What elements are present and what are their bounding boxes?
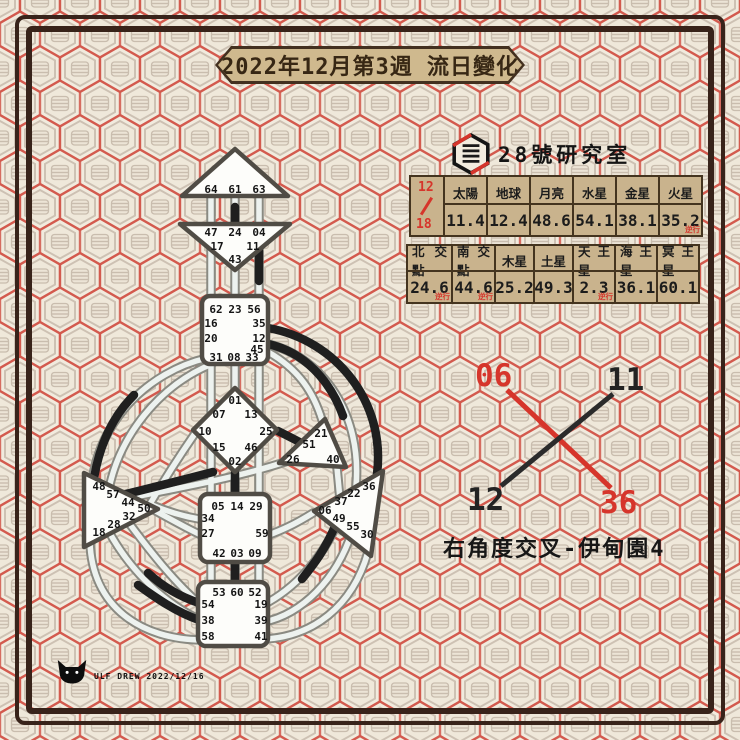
gate-02: 02	[228, 455, 241, 468]
gate-33: 33	[245, 351, 258, 364]
retrograde-badge: 逆行	[598, 291, 613, 302]
gate-23: 23	[228, 303, 241, 316]
gate-15: 15	[212, 441, 225, 454]
retrograde-badge: 逆行	[685, 224, 700, 235]
page-title: 2022年12月第3週 流日變化	[221, 49, 519, 81]
gate-40: 40	[326, 453, 339, 466]
gate-value-venus: 38.1	[615, 203, 658, 235]
gate-04: 04	[252, 226, 266, 239]
gate-57: 57	[106, 488, 119, 501]
gate-value-moon: 48.6	[529, 203, 572, 235]
gate-09: 09	[248, 547, 261, 560]
cross-gate-12: 12	[467, 482, 504, 518]
gate-20: 20	[204, 332, 217, 345]
planet-header-jupiter: 木星	[498, 247, 531, 270]
gate-21: 21	[314, 427, 328, 440]
planet-header-venus: 金星	[621, 179, 654, 202]
gate-value-mercury: 54.1	[572, 203, 615, 235]
lab-hexagon-icon	[452, 133, 490, 175]
gate-56: 56	[247, 303, 261, 316]
gate-16: 16	[204, 317, 218, 330]
gate-35: 35	[252, 317, 265, 330]
gate-29: 29	[249, 500, 262, 513]
gate-61: 61	[228, 183, 242, 196]
gate-59: 59	[255, 527, 268, 540]
cross-gate-06: 06	[475, 358, 512, 394]
gate-13: 13	[244, 408, 257, 421]
planet-header-earth: 地球	[492, 179, 525, 202]
credit-block: ULF DREW 2022/12/16	[56, 658, 205, 685]
poster: 2022年12月第3週 流日變化 28號研究室 12 18 太陽 地球 月亮 水…	[0, 0, 740, 740]
gate-31: 31	[209, 351, 223, 364]
cross-gate-36: 36	[600, 485, 637, 521]
incarnation-cross-label: 右角度交叉-伊甸園4	[443, 531, 679, 563]
gate-06: 06	[318, 504, 332, 517]
gate-11: 11	[246, 240, 260, 253]
gate-37: 37	[334, 495, 347, 508]
credit-text: ULF DREW 2022/12/16	[94, 672, 205, 685]
planet-header-moon: 月亮	[535, 179, 568, 202]
gate-43: 43	[228, 253, 241, 266]
gate-03: 03	[230, 547, 243, 560]
gate-10: 10	[198, 425, 211, 438]
gate-27: 27	[201, 527, 214, 540]
incarnation-cross-diagram: 06 11 12 36	[445, 352, 675, 532]
retrograde-badge: 逆行	[435, 291, 450, 302]
gate-63: 63	[252, 183, 265, 196]
gate-51: 51	[302, 438, 316, 451]
transit-table-planets: 12 18 太陽 地球 月亮 水星 金星 火星 11.4 12.4 48.6 5…	[409, 175, 703, 237]
gate-49: 49	[332, 512, 345, 525]
gate-54: 54	[201, 598, 215, 611]
gate-32: 32	[122, 510, 135, 523]
gate-value-sun: 11.4	[443, 203, 486, 235]
gate-34: 34	[201, 512, 215, 525]
gate-19: 19	[254, 598, 267, 611]
gate-value-saturn: 49.3	[533, 270, 572, 302]
gate-64: 64	[204, 183, 218, 196]
gate-value-south-node: 44.6 逆行	[451, 270, 494, 302]
gate-25: 25	[259, 425, 272, 438]
gate-42: 42	[212, 547, 225, 560]
title-banner: 2022年12月第3週 流日變化	[215, 46, 525, 84]
cross-gate-11: 11	[607, 362, 644, 398]
gate-39: 39	[254, 614, 267, 627]
gate-38: 38	[201, 614, 214, 627]
gate-value-pluto: 60.1	[656, 270, 698, 302]
gate-41: 41	[254, 630, 268, 643]
gate-value-uranus: 2.3 逆行	[572, 270, 614, 302]
gate-17: 17	[210, 240, 223, 253]
gate-28: 28	[107, 518, 120, 531]
bodygraph: 64 61 63 47 24 04 17 11 43 62 23 56 16 3…	[40, 140, 430, 660]
gate-48: 48	[92, 480, 105, 493]
planet-header-mars: 火星	[664, 179, 697, 202]
gate-50: 50	[137, 502, 150, 515]
gate-14: 14	[230, 500, 244, 513]
gate-26: 26	[286, 453, 300, 466]
gate-47: 47	[204, 226, 217, 239]
gate-44: 44	[121, 496, 135, 509]
gate-46: 46	[244, 441, 258, 454]
gate-01: 01	[228, 394, 242, 407]
gate-30: 30	[360, 528, 373, 541]
gate-36: 36	[362, 480, 376, 493]
gate-60: 60	[230, 586, 243, 599]
planet-header-saturn: 土星	[537, 247, 570, 270]
studio-name: 28號研究室	[498, 139, 631, 169]
gate-55: 55	[346, 520, 359, 533]
planet-header-sun: 太陽	[449, 179, 482, 202]
gate-07: 07	[212, 408, 225, 421]
gate-value-neptune: 36.1	[614, 270, 656, 302]
wolf-icon	[56, 658, 88, 685]
retrograde-badge: 逆行	[478, 291, 493, 302]
transit-table-outer-planets: 北交點 南交點 木星 土星 天王星 海王星 冥王星 24.6 逆行 44.6 逆…	[406, 244, 700, 304]
gate-62: 62	[209, 303, 222, 316]
planet-header-mercury: 水星	[578, 179, 611, 202]
gate-24: 24	[228, 226, 242, 239]
gate-value-earth: 12.4	[486, 203, 529, 235]
gate-22: 22	[347, 487, 360, 500]
gate-18: 18	[92, 526, 105, 539]
gate-value-mars: 35.2 逆行	[658, 203, 701, 235]
gate-08: 08	[227, 351, 240, 364]
gate-58: 58	[201, 630, 214, 643]
studio-brand: 28號研究室	[452, 133, 631, 175]
gate-value-jupiter: 25.2	[494, 270, 533, 302]
